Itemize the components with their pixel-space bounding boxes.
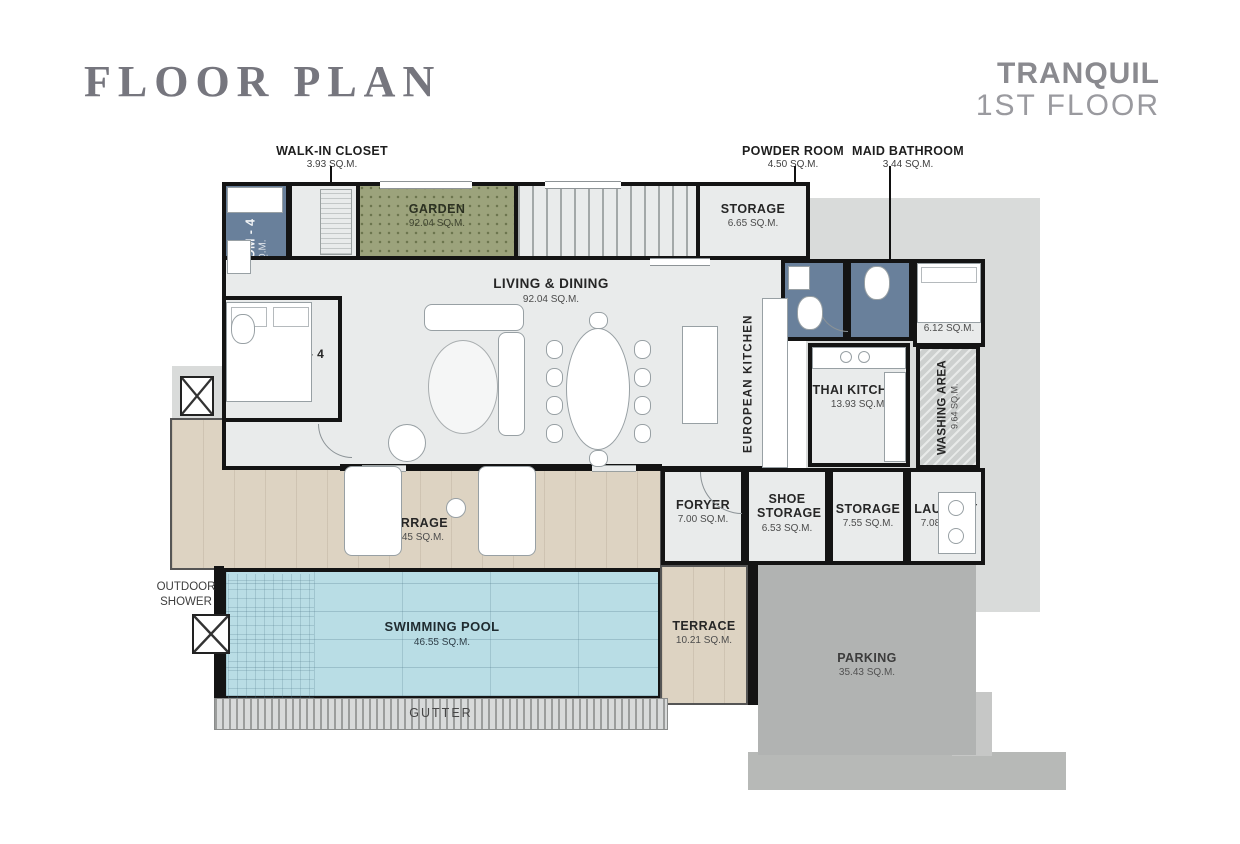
window [380, 181, 472, 189]
washer-drum [948, 500, 964, 516]
label-european-kitchen: EUROPEAN KITCHEN [736, 298, 762, 470]
wardrobe [320, 189, 352, 255]
sink [788, 266, 810, 290]
window [545, 181, 621, 189]
armchair [388, 424, 426, 462]
chair [546, 396, 563, 415]
room-name: GARDEN [360, 202, 514, 216]
callout-name: MAID BATHROOM [852, 144, 964, 158]
parking-wall [748, 563, 758, 705]
chair [634, 396, 651, 415]
project-name: TRANQUIL [976, 58, 1160, 90]
room-name: STORAGE [700, 202, 806, 216]
chair [546, 424, 563, 443]
bathtub [227, 187, 283, 213]
room-walk-in-closet [288, 182, 360, 260]
room-name: PARKING [758, 651, 976, 665]
room-area: 7.00 SQ.M. [665, 514, 741, 525]
room-name: WASHING AREA [936, 359, 949, 454]
stove-burner [840, 351, 852, 363]
room-area: 7.55 SQ.M. [833, 518, 903, 529]
pillow [273, 307, 309, 327]
thai-kitchen-counter [884, 372, 906, 462]
sofa [424, 304, 524, 331]
callout-name: POWDER ROOM [742, 144, 844, 158]
dining-table [566, 328, 630, 450]
chair [634, 340, 651, 359]
lounger [344, 466, 402, 556]
room-name: TERRAGE [172, 516, 660, 530]
room-name: TERRACE [662, 619, 746, 633]
callout-area: 4.50 SQ.M. [742, 159, 844, 170]
floor-plan-page: FLOOR PLAN TRANQUIL 1ST FLOOR WALK-IN CL… [0, 0, 1240, 844]
window [650, 258, 710, 266]
page-title: FLOOR PLAN [84, 56, 441, 107]
room-shoe-storage: SHOE STORAGE 6.53 SQ.M. [745, 468, 829, 565]
shower-tray-icon [192, 614, 230, 654]
room-garden: GARDEN 92.04 SQ.M. [356, 182, 518, 260]
room-area: 9.64 SQ.M. [950, 383, 960, 429]
callout-area: 3.44 SQ.M. [852, 159, 964, 170]
room-area: 92.04 SQ.M. [416, 294, 686, 305]
chair [546, 340, 563, 359]
gutter-label: GUTTER [215, 706, 667, 720]
room-area: 60.45 SQ.M. [172, 532, 660, 543]
outdoor-shower-label: OUTDOOR SHOWER [138, 580, 234, 610]
room-name: LIVING & DINING [416, 276, 686, 292]
room-area: 6.65 SQ.M. [700, 218, 806, 229]
driveway-strip [748, 752, 1066, 790]
stairs [514, 182, 700, 260]
room-area: 92.04 SQ.M. [360, 218, 514, 229]
room-storage-top: STORAGE 6.65 SQ.M. [696, 182, 810, 260]
room-name: SHOE STORAGE [757, 492, 817, 521]
callout-area: 3.93 SQ.M. [276, 159, 388, 170]
lounger [478, 466, 536, 556]
room-swimming-pool: SWIMMING POOL 46.55 SQ.M. [222, 568, 662, 700]
gutter-strip: GUTTER [214, 698, 668, 730]
room-area: 46.55 SQ.M. [226, 637, 658, 648]
room-area: 35.43 SQ.M. [758, 667, 976, 678]
room-area: 10.21 SQ.M. [662, 635, 746, 646]
chair [589, 312, 608, 329]
sink [227, 240, 251, 274]
chair [589, 450, 608, 467]
callout-name: WALK-IN CLOSET [276, 144, 388, 158]
kitchen-counter [762, 298, 788, 468]
chair [546, 368, 563, 387]
room-name: SWIMMING POOL [226, 620, 658, 635]
room-area: 6.53 SQ.M. [757, 523, 817, 534]
pillow [921, 267, 977, 283]
room-storage-mid: STORAGE 7.55 SQ.M. [829, 468, 907, 565]
room-name: STORAGE [833, 502, 903, 516]
room-name: EUROPEAN KITCHEN [742, 315, 755, 454]
room-terrace-small: TERRACE 10.21 SQ.M. [660, 565, 748, 705]
room-washing-area: WASHING AREA 9.64 SQ.M. [916, 345, 980, 469]
callout-walk-in-closet: WALK-IN CLOSET 3.93 SQ.M. [276, 144, 388, 170]
ac-unit-icon [180, 376, 214, 416]
toilet [864, 266, 890, 300]
sofa [498, 332, 525, 436]
callout-maid-bathroom: MAID BATHROOM 3.44 SQ.M. [852, 144, 964, 170]
kitchen-island [682, 326, 718, 424]
project-brand: TRANQUIL 1ST FLOOR [976, 58, 1160, 121]
floor-label: 1ST FLOOR [976, 90, 1160, 122]
toilet [231, 314, 255, 344]
callout-powder-room: POWDER ROOM 4.50 SQ.M. [742, 144, 844, 170]
stove-burner [858, 351, 870, 363]
side-table [446, 498, 466, 518]
room-parking: PARKING 35.43 SQ.M. [758, 565, 976, 755]
chair [634, 424, 651, 443]
washer-drum [948, 528, 964, 544]
chair [634, 368, 651, 387]
rug [428, 340, 498, 434]
toilet [797, 296, 823, 330]
room-area: 6.12 SQ.M. [917, 323, 981, 334]
